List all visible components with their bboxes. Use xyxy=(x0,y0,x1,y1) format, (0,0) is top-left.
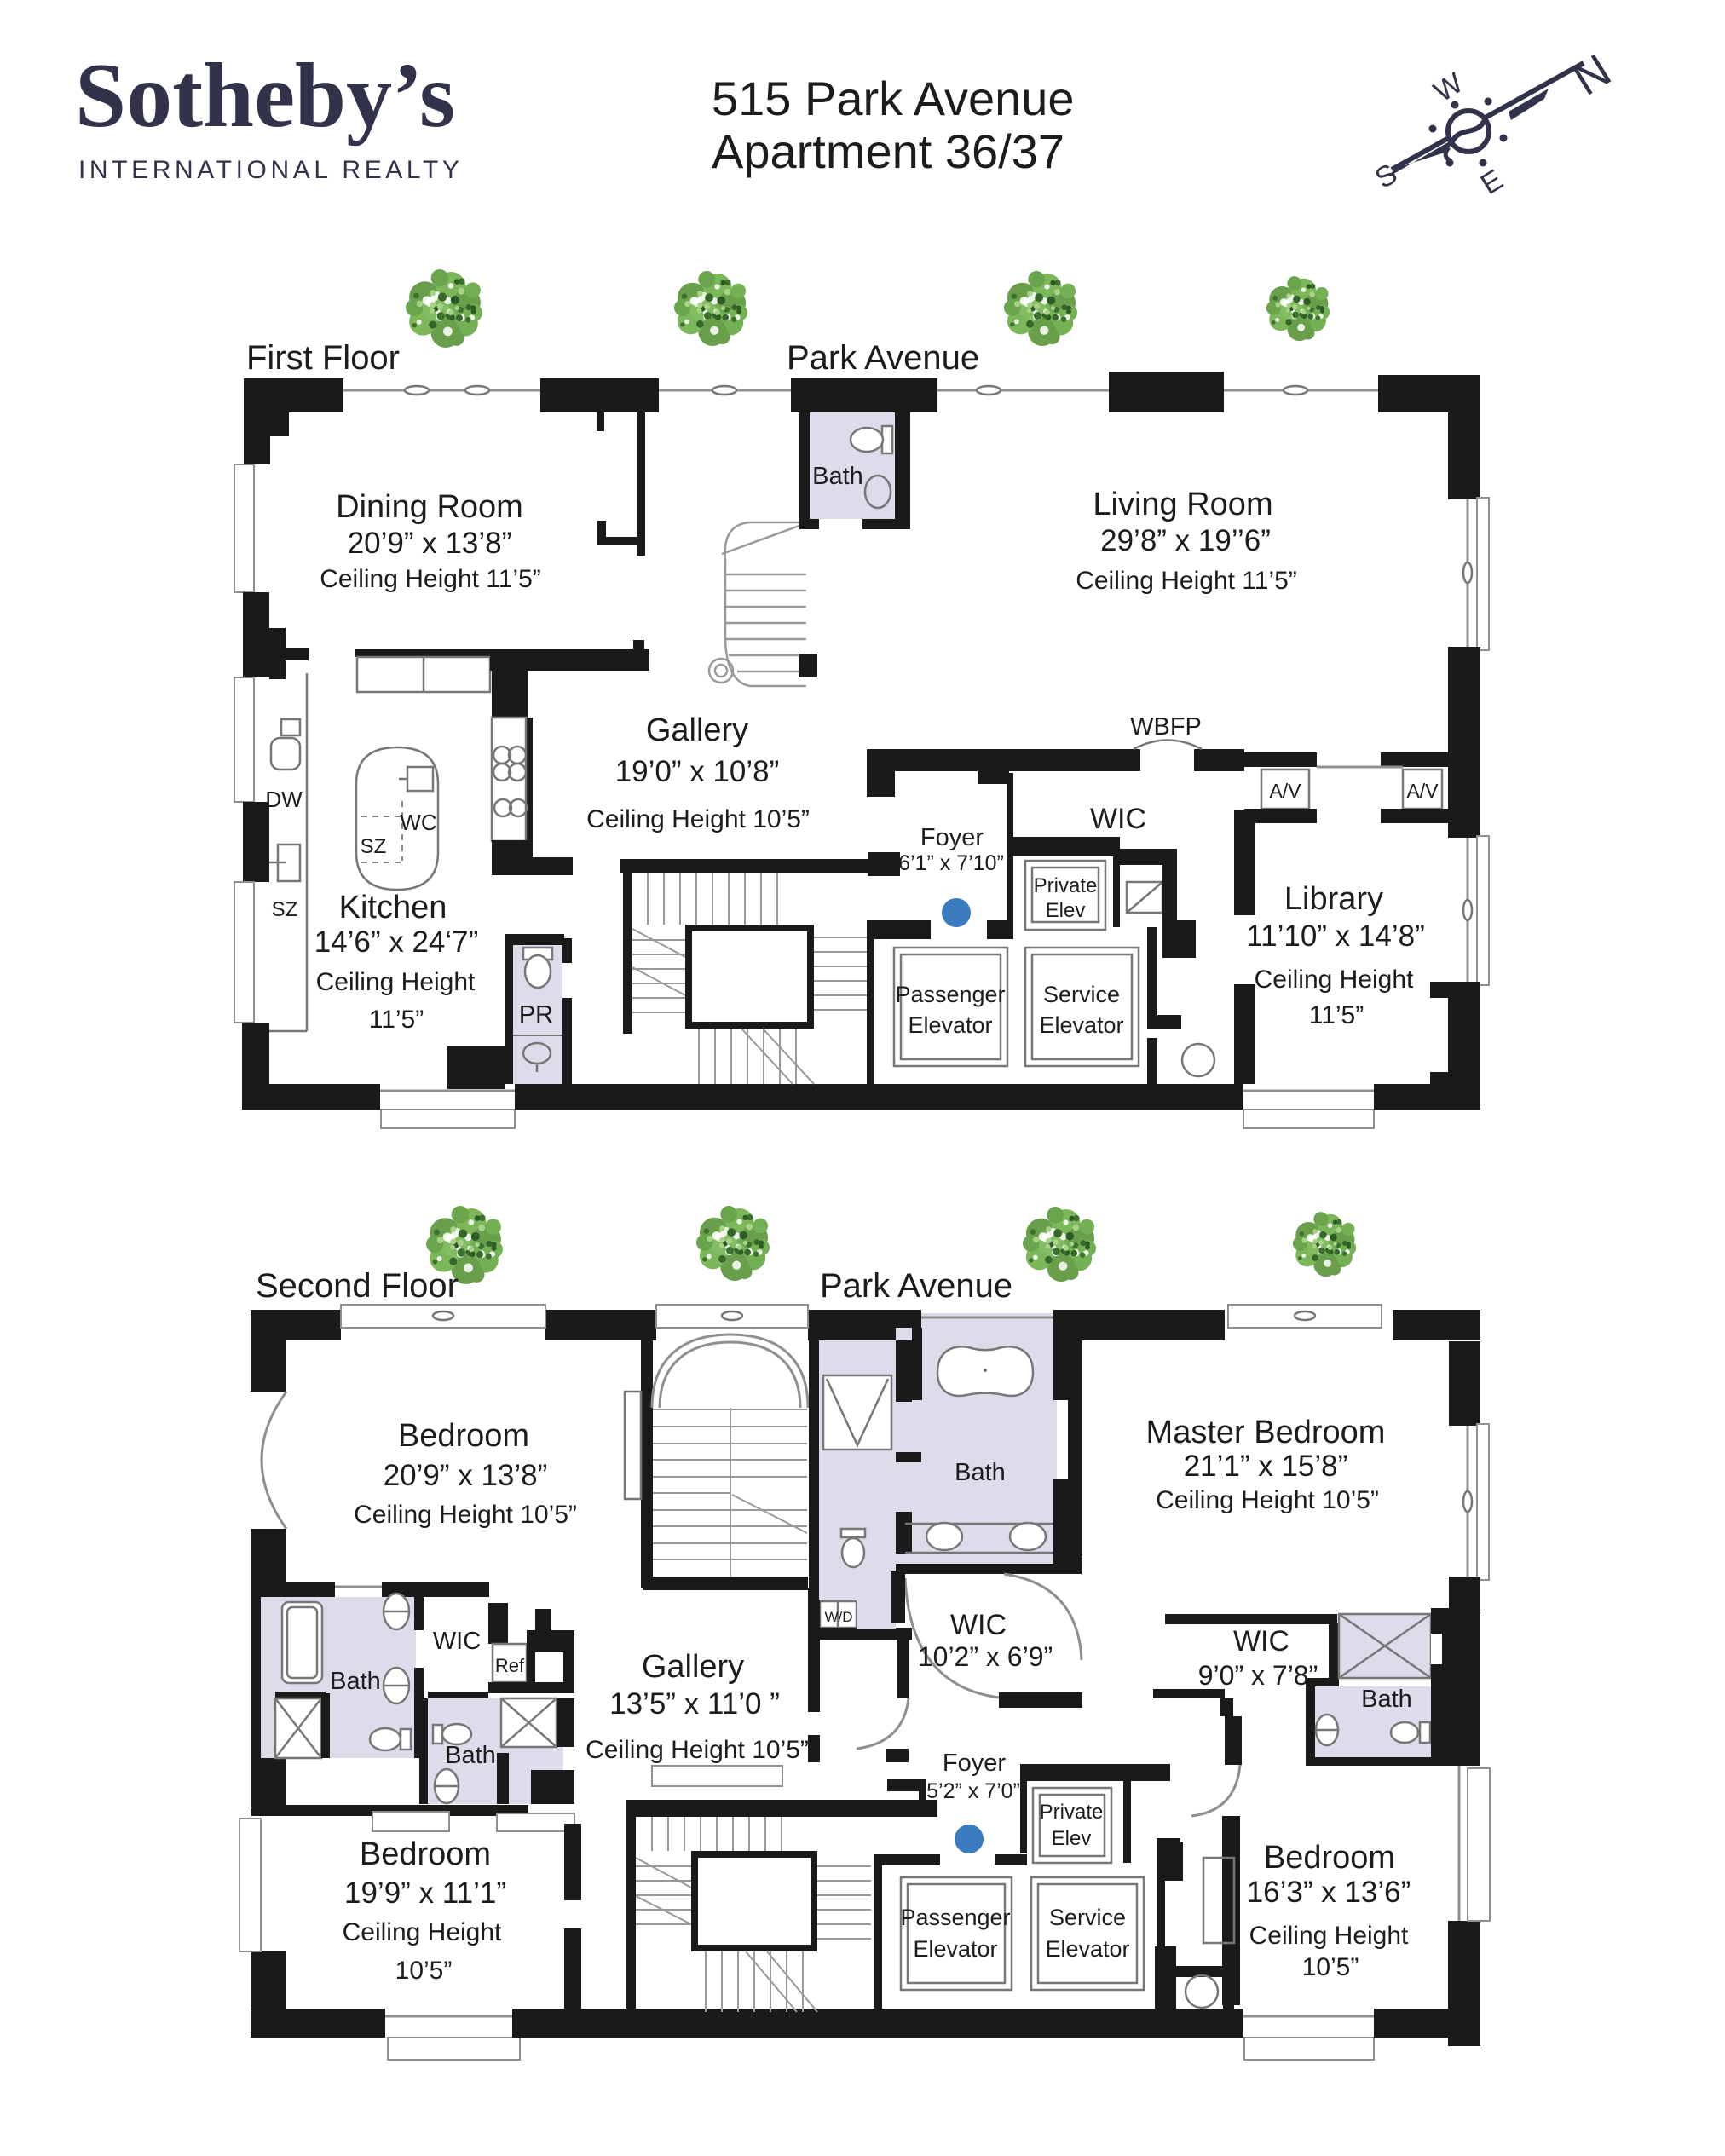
svg-text:Gallery: Gallery xyxy=(646,712,748,748)
svg-text:Kitchen: Kitchen xyxy=(339,890,447,925)
svg-text:SZ: SZ xyxy=(361,835,387,858)
svg-text:Passenger: Passenger xyxy=(895,982,1005,1007)
svg-text:W/D: W/D xyxy=(824,1609,852,1625)
svg-text:WC: WC xyxy=(400,810,436,835)
svg-text:10’2” x 6’9”: 10’2” x 6’9” xyxy=(918,1641,1053,1672)
svg-text:Master Bedroom: Master Bedroom xyxy=(1146,1415,1386,1450)
svg-text:PR: PR xyxy=(519,1001,553,1029)
svg-text:Ceiling Height 10’5”: Ceiling Height 10’5” xyxy=(1156,1486,1379,1514)
svg-text:Ceiling Height: Ceiling Height xyxy=(1249,1922,1409,1950)
svg-text:Library: Library xyxy=(1284,881,1383,917)
svg-text:14’6” x 24‘7”: 14’6” x 24‘7” xyxy=(314,925,479,959)
svg-text:Bath: Bath xyxy=(330,1668,381,1695)
svg-text:Dining Room: Dining Room xyxy=(336,489,523,525)
svg-text:Elevator: Elevator xyxy=(1045,1936,1129,1962)
svg-text:11’10” x 14’8”: 11’10” x 14’8” xyxy=(1246,919,1424,953)
svg-text:Passenger: Passenger xyxy=(900,1905,1010,1930)
svg-text:Bath: Bath xyxy=(812,463,863,490)
svg-text:Ceiling Height: Ceiling Height xyxy=(316,968,476,996)
svg-text:Bath: Bath xyxy=(445,1742,496,1769)
svg-text:Elevator: Elevator xyxy=(913,1936,997,1962)
svg-text:Private: Private xyxy=(1034,874,1098,897)
svg-text:WBFP: WBFP xyxy=(1130,713,1202,741)
svg-text:20’9” x 13’8”: 20’9” x 13’8” xyxy=(348,527,512,560)
svg-text:Bedroom: Bedroom xyxy=(360,1836,491,1872)
svg-text:Park Avenue: Park Avenue xyxy=(787,339,979,377)
svg-text:DW: DW xyxy=(265,787,303,812)
svg-text:Elev: Elev xyxy=(1052,1827,1092,1850)
svg-text:Bedroom: Bedroom xyxy=(1264,1840,1395,1876)
svg-text:Bath: Bath xyxy=(955,1459,1006,1486)
svg-text:Park Avenue: Park Avenue xyxy=(820,1267,1012,1305)
svg-text:19’0” x 10’8”: 19’0” x 10’8” xyxy=(615,755,780,788)
svg-text:Gallery: Gallery xyxy=(642,1649,744,1685)
svg-text:Ceiling Height 11’5”: Ceiling Height 11’5” xyxy=(1076,567,1297,595)
svg-text:WIC: WIC xyxy=(950,1609,1007,1641)
svg-text:Service: Service xyxy=(1043,982,1120,1007)
svg-text:WIC: WIC xyxy=(433,1628,481,1655)
svg-text:Foyer: Foyer xyxy=(920,824,984,851)
svg-text:Foyer: Foyer xyxy=(943,1750,1006,1777)
svg-text:Elevator: Elevator xyxy=(908,1012,992,1038)
svg-text:Ceiling Height 11’5”: Ceiling Height 11’5” xyxy=(320,565,541,593)
svg-text:13’5” x 11’0 ”: 13’5” x 11’0 ” xyxy=(609,1687,780,1721)
svg-text:29’8” x 19’’6”: 29’8” x 19’’6” xyxy=(1100,524,1271,557)
svg-text:Bath: Bath xyxy=(1361,1686,1412,1713)
svg-text:Second Floor: Second Floor xyxy=(256,1267,459,1305)
svg-text:19’9” x 11’1”: 19’9” x 11’1” xyxy=(344,1876,506,1910)
svg-text:9’0” x 7’8”: 9’0” x 7’8” xyxy=(1198,1660,1318,1691)
svg-text:Service: Service xyxy=(1049,1905,1126,1930)
svg-text:10’5”: 10’5” xyxy=(1302,1953,1359,1981)
svg-text:Ceiling Height 10’5”: Ceiling Height 10’5” xyxy=(586,1736,809,1764)
svg-text:WIC: WIC xyxy=(1233,1625,1289,1657)
svg-text:INTERNATIONAL REALTY: INTERNATIONAL REALTY xyxy=(78,156,464,184)
svg-text:Ceiling Height: Ceiling Height xyxy=(1255,966,1414,994)
svg-text:20’9” x 13’8”: 20’9” x 13’8” xyxy=(384,1459,548,1492)
svg-text:Private: Private xyxy=(1040,1801,1104,1824)
svg-text:A/V: A/V xyxy=(1406,780,1439,802)
svg-text:5’2” x 7’0”: 5’2” x 7’0” xyxy=(926,1779,1020,1803)
svg-text:515 Park Avenue: 515 Park Avenue xyxy=(712,72,1075,125)
svg-text:16’3” x 13’6”: 16’3” x 13’6” xyxy=(1247,1876,1411,1909)
svg-text:WIC: WIC xyxy=(1090,803,1146,835)
svg-text:First Floor: First Floor xyxy=(246,339,400,377)
svg-text:11’5”: 11’5” xyxy=(1309,1001,1364,1029)
svg-text:6’1” x 7’10”: 6’1” x 7’10” xyxy=(898,851,1004,875)
svg-text:A/V: A/V xyxy=(1269,780,1301,802)
svg-text:11’5”: 11’5” xyxy=(369,1006,424,1034)
svg-text:Bedroom: Bedroom xyxy=(398,1418,529,1454)
svg-text:Ceiling Height: Ceiling Height xyxy=(343,1918,502,1946)
svg-text:10’5”: 10’5” xyxy=(395,1957,453,1985)
svg-text:Apartment 36/37: Apartment 36/37 xyxy=(712,124,1064,178)
svg-text:Living Room: Living Room xyxy=(1093,487,1272,522)
svg-text:Sotheby’s: Sotheby’s xyxy=(75,45,455,147)
svg-text:Ceiling Height 10’5”: Ceiling Height 10’5” xyxy=(354,1501,577,1529)
svg-text:Ceiling Height 10’5”: Ceiling Height 10’5” xyxy=(586,805,810,833)
svg-text:Elev: Elev xyxy=(1046,899,1086,922)
svg-text:SZ: SZ xyxy=(272,898,298,921)
svg-text:Ref: Ref xyxy=(495,1655,525,1676)
svg-text:21’1” x 15’8”: 21’1” x 15’8” xyxy=(1184,1450,1348,1483)
svg-text:Elevator: Elevator xyxy=(1039,1012,1123,1038)
